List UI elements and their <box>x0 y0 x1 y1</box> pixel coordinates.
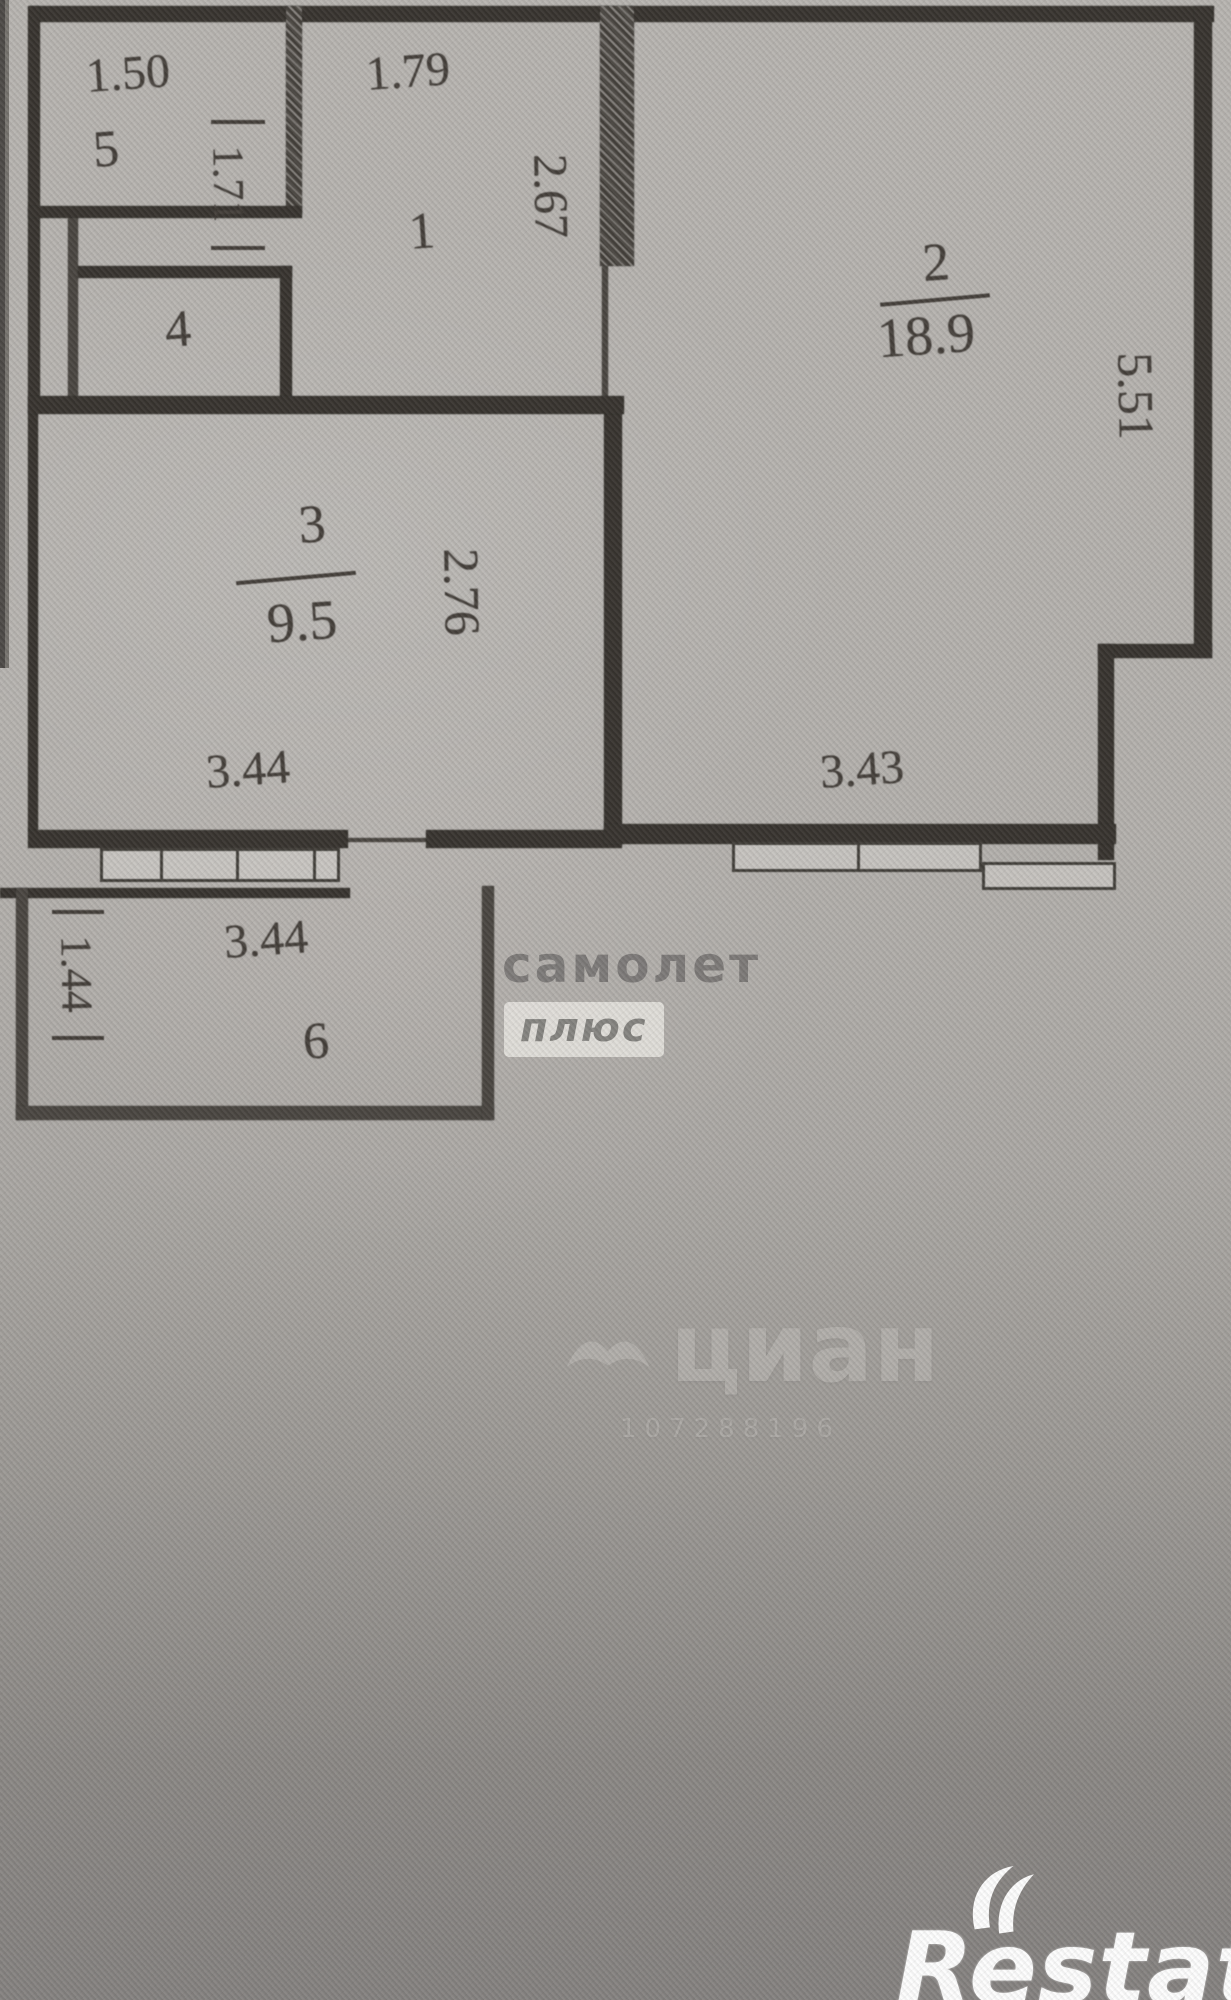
window-room3 <box>100 848 340 882</box>
wall-room5-bottom <box>28 206 302 218</box>
dimension-room2-height: 5.51 <box>1110 352 1162 440</box>
window-mullion <box>236 851 239 879</box>
dimension-room3-width: 3.44 <box>204 743 291 797</box>
wall-room4-right <box>280 266 292 406</box>
dimension-tick <box>211 246 265 250</box>
restate-logo: Restate <box>896 1874 1231 2000</box>
dimension-tick <box>52 1036 104 1040</box>
wall-balcony-right <box>482 886 494 1120</box>
wall-hall-room3 <box>28 396 624 414</box>
watermark-cian-id: 107288196 <box>620 1414 940 1444</box>
dimension-room6-height: 1.44 <box>53 935 98 1013</box>
wall-room3-bottom-right <box>426 830 622 848</box>
window-room2 <box>732 842 982 872</box>
room-number-2: 2 <box>921 234 952 290</box>
balcony-door-sill <box>348 838 426 842</box>
dimension-tick <box>211 120 265 124</box>
window-room2-bay <box>982 862 1116 890</box>
watermark-samolet-plus: самолет плюс <box>502 936 761 1057</box>
wall-room2-bottom <box>604 824 1116 844</box>
dimension-room1-height: 2.67 <box>525 154 574 239</box>
cian-bird-icon <box>560 1315 656 1381</box>
room-number-1: 1 <box>407 205 437 259</box>
dimension-room2-width: 3.43 <box>818 743 905 797</box>
dimension-room3-height: 2.76 <box>436 548 488 636</box>
watermark-plus-badge: плюс <box>504 1002 664 1057</box>
wall-hall-room2-upper <box>600 6 634 266</box>
door-jamb-room2 <box>602 266 608 406</box>
area-room2: 18.9 <box>875 305 977 368</box>
dimension-room5-height: 1.71 <box>205 145 250 223</box>
balcony-top-line <box>0 888 350 898</box>
wall-closet-right <box>68 218 78 406</box>
watermark-plus-text: плюс <box>520 1005 648 1051</box>
room-number-4: 4 <box>163 303 193 357</box>
window-mullion <box>160 851 163 879</box>
wall-room3-room2 <box>604 398 622 832</box>
wall-right-upper <box>1194 6 1212 658</box>
wall-room4-top <box>78 266 292 278</box>
wall-balcony-left <box>16 888 28 1120</box>
watermark-cian-text: циан <box>670 1292 940 1404</box>
room-number-6: 6 <box>301 1015 331 1069</box>
dimension-room1-width: 1.79 <box>364 45 451 99</box>
dimension-room6-width: 3.44 <box>222 913 309 967</box>
window-mullion <box>313 851 316 879</box>
fraction-line <box>236 571 356 585</box>
wall-right-jog <box>1098 644 1212 658</box>
wall-room3-bottom-left <box>28 830 348 848</box>
wall-balcony-bottom <box>16 1106 494 1120</box>
room-number-3: 3 <box>297 496 328 552</box>
dimension-tick <box>52 910 104 914</box>
scan-edge-artifact <box>0 0 12 668</box>
dimension-room5-width: 1.50 <box>84 47 171 101</box>
watermark-cian: циан 107288196 <box>560 1292 940 1444</box>
restate-logo-text: Restate <box>896 1910 1231 2000</box>
scanned-floor-plan: 1.50 5 1.71 1.79 1 2.67 4 2 18.9 5.51 3.… <box>0 0 1231 2000</box>
area-room3: 9.5 <box>265 592 339 653</box>
wall-left-room3 <box>28 406 38 832</box>
window-mullion <box>857 845 860 869</box>
room-number-5: 5 <box>91 123 121 177</box>
watermark-samolet-text: самолет <box>502 936 761 994</box>
wall-room5-right <box>286 6 302 214</box>
